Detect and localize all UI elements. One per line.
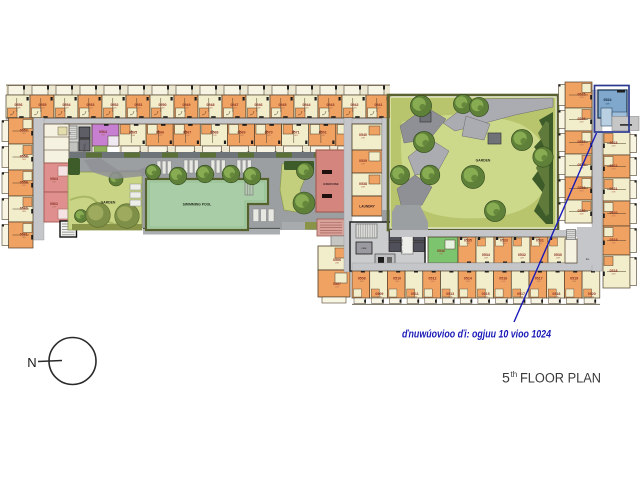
svg-text:1BR: 1BR [335,263,340,265]
svg-text:0526: 0526 [578,117,586,121]
svg-text:0547: 0547 [231,103,239,107]
svg-text:1BR: 1BR [430,281,435,283]
svg-text:1BR: 1BR [611,192,616,194]
svg-text:0566: 0566 [156,131,164,135]
svg-text:EXERCISE: EXERCISE [323,182,338,186]
svg-text:0508: 0508 [358,277,366,281]
svg-text:0552: 0552 [111,103,119,107]
svg-text:0570: 0570 [265,131,273,135]
svg-text:0559: 0559 [20,181,28,185]
svg-text:1BR: 1BR [611,146,616,148]
svg-text:th: th [511,370,518,379]
svg-text:1BR: 1BR [361,138,366,140]
svg-text:0539: 0539 [359,159,367,163]
svg-text:1BR: 1BR [579,122,584,124]
svg-text:1BR: 1BR [556,258,561,260]
svg-text:1BR: 1BR [328,108,333,110]
svg-text:0556: 0556 [15,103,23,107]
svg-text:0568: 0568 [210,131,218,135]
svg-text:0510: 0510 [393,277,401,281]
svg-text:0519: 0519 [570,277,578,281]
svg-text:0535: 0535 [464,239,472,243]
svg-text:0554: 0554 [63,103,71,107]
svg-text:1BR: 1BR [22,211,27,213]
svg-text:1BR: 1BR [605,104,610,106]
svg-text:1BR: 1BR [611,243,616,245]
svg-text:0563: 0563 [50,177,58,181]
svg-text:1BR: 1BR [361,164,366,166]
svg-text:0525: 0525 [578,93,586,97]
svg-text:1BR: 1BR [22,133,27,135]
svg-text:0550: 0550 [159,103,167,107]
svg-text:1BR: 1BR [579,214,584,216]
svg-text:0524: 0524 [604,98,612,102]
svg-text:0521: 0521 [610,187,618,191]
svg-text:0517: 0517 [535,277,543,281]
svg-text:1BR: 1BR [212,135,217,137]
svg-text:1BR: 1BR [16,108,21,110]
svg-text:0542: 0542 [351,103,359,107]
svg-text:1BR: 1BR [321,135,326,137]
svg-text:1BR: 1BR [579,191,584,193]
svg-text:0530: 0530 [578,209,586,213]
svg-text:1BR: 1BR [232,108,237,110]
svg-text:0562: 0562 [50,202,58,206]
svg-text:0538: 0538 [359,182,367,186]
svg-text:0520: 0520 [588,292,596,296]
svg-text:0520: 0520 [610,211,618,215]
svg-text:1BR: 1BR [520,258,525,260]
svg-text:1BR: 1BR [22,185,27,187]
svg-text:1BR: 1BR [361,187,366,189]
svg-text:ďnuwúovioo ďi: ogjuu 10 vioo 1: ďnuwúovioo ďi: ogjuu 10 vioo 1024 [402,329,551,341]
svg-text:0515: 0515 [482,292,490,296]
svg-text:0558: 0558 [20,155,28,159]
svg-text:1BR: 1BR [52,182,57,184]
svg-text:1BR: 1BR [136,108,141,110]
svg-text:0514: 0514 [464,277,472,281]
svg-text:1BR: 1BR [466,281,471,283]
svg-text:1BR: 1BR [466,243,471,245]
svg-text:1BR: 1BR [579,97,584,99]
svg-text:GARDEN: GARDEN [476,159,491,163]
svg-text:1BR: 1BR [572,281,577,283]
svg-text:0501: 0501 [319,131,327,135]
svg-text:1BR: 1BR [266,135,271,137]
svg-text:1BR: 1BR [52,207,57,209]
svg-text:0527: 0527 [578,140,586,144]
svg-text:1BR: 1BR [160,108,165,110]
svg-text:1BR: 1BR [112,108,117,110]
svg-text:0551: 0551 [135,103,143,107]
svg-text:1BR: 1BR [376,108,381,110]
svg-text:0516: 0516 [499,277,507,281]
svg-text:0506: 0506 [333,258,341,262]
svg-text:1BR: 1BR [158,135,163,137]
svg-text:1BR: 1BR [185,135,190,137]
svg-text:1BR: 1BR [184,108,189,110]
svg-text:1BR: 1BR [22,237,27,239]
svg-text:SWIMMING POOL: SWIMMING POOL [183,203,212,207]
svg-text:0540: 0540 [359,133,367,137]
svg-text:0544: 0544 [303,103,311,107]
svg-text:N: N [27,355,36,370]
svg-text:1BR: 1BR [40,108,45,110]
svg-text:0560: 0560 [20,207,28,211]
svg-text:1BR: 1BR [611,274,616,276]
svg-text:0512: 0512 [429,277,437,281]
svg-text:0507: 0507 [333,282,341,286]
svg-text:0569: 0569 [238,131,246,135]
svg-text:1BR: 1BR [611,216,616,218]
svg-text:0532: 0532 [518,253,526,257]
svg-text:1BR: 1BR [22,159,27,161]
svg-text:0561: 0561 [20,233,28,237]
svg-text:LAUNDRY: LAUNDRY [359,205,375,209]
svg-text:1BR: 1BR [335,287,340,289]
svg-text:0543: 0543 [327,103,335,107]
svg-text:0571: 0571 [292,131,300,135]
svg-text:1BR: 1BR [538,243,543,245]
svg-text:0530: 0530 [554,253,562,257]
svg-text:0517: 0517 [517,292,525,296]
svg-text:1BR: 1BR [502,243,507,245]
svg-text:1BR: 1BR [64,108,69,110]
svg-text:1BR: 1BR [484,258,489,260]
svg-text:1BR: 1BR [501,281,506,283]
svg-text:1BR: 1BR [131,135,136,137]
svg-text:1BR: 1BR [294,135,299,137]
svg-text:1BR: 1BR [537,281,542,283]
svg-text:0548: 0548 [207,103,215,107]
svg-text:0541: 0541 [375,103,383,107]
svg-text:1BR: 1BR [208,108,213,110]
svg-text:0533: 0533 [500,239,508,243]
svg-text:1BR: 1BR [439,254,444,256]
svg-text:FLOOR PLAN: FLOOR PLAN [520,371,601,387]
svg-text:1BR: 1BR [88,108,93,110]
svg-text:1BR: 1BR [352,108,357,110]
svg-text:0519: 0519 [610,238,618,242]
svg-text:0529: 0529 [578,186,586,190]
svg-text:1BR: 1BR [256,108,261,110]
svg-text:0557: 0557 [20,129,28,133]
svg-text:GARDEN: GARDEN [101,201,116,205]
svg-text:0549: 0549 [183,103,191,107]
svg-text:0509: 0509 [375,292,383,296]
svg-text:LIFT HALL: LIFT HALL [400,238,404,253]
svg-text:0545: 0545 [279,103,287,107]
svg-text:0553: 0553 [87,103,95,107]
svg-text:0564: 0564 [99,130,107,134]
svg-text:1BR: 1BR [395,281,400,283]
svg-text:FIRE: FIRE [362,248,368,250]
svg-text:0511: 0511 [411,292,419,296]
svg-text:0522: 0522 [610,164,618,168]
svg-text:0531: 0531 [536,239,544,243]
svg-text:0546: 0546 [255,103,263,107]
svg-text:5: 5 [502,371,510,387]
svg-text:1BR: 1BR [579,145,584,147]
svg-text:1BR: 1BR [360,281,365,283]
svg-text:0523: 0523 [610,141,618,145]
svg-text:0565: 0565 [129,131,137,135]
svg-text:0534: 0534 [482,253,490,257]
svg-text:1BR: 1BR [304,108,309,110]
svg-text:0567: 0567 [183,131,191,135]
svg-text:EL.: EL. [586,257,590,261]
svg-text:1BR: 1BR [101,135,106,137]
svg-text:1BR: 1BR [611,169,616,171]
svg-text:0555: 0555 [39,103,47,107]
svg-text:1BR: 1BR [239,135,244,137]
svg-text:0513: 0513 [446,292,454,296]
svg-text:1BR: 1BR [280,108,285,110]
svg-text:0536: 0536 [437,249,445,253]
svg-text:0518: 0518 [552,292,560,296]
svg-text:0518: 0518 [610,269,618,273]
